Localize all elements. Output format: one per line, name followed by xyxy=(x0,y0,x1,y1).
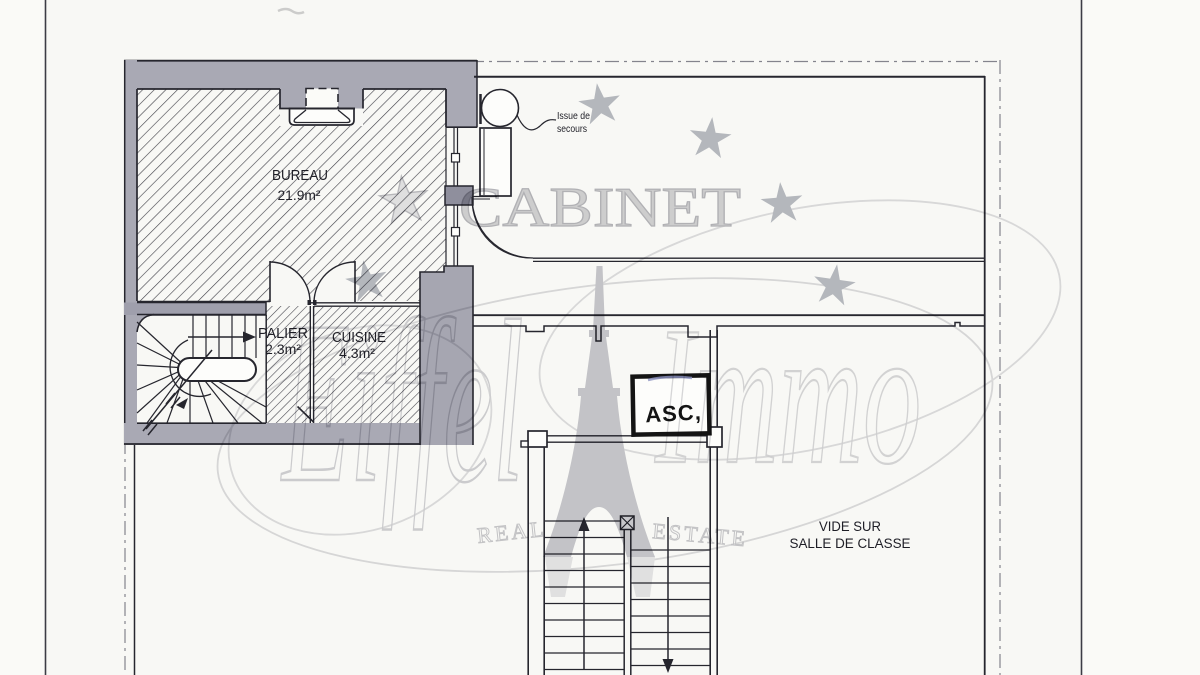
svg-text:BUREAU: BUREAU xyxy=(272,167,328,184)
svg-text:Eiffel: Eiffel xyxy=(280,273,524,531)
svg-text:VIDE SUR: VIDE SUR xyxy=(819,519,881,534)
svg-text:SALLE DE CLASSE: SALLE DE CLASSE xyxy=(790,536,911,551)
svg-text:21.9m²: 21.9m² xyxy=(278,188,322,203)
svg-text:secours: secours xyxy=(557,123,587,135)
svg-text:Issue de: Issue de xyxy=(557,110,590,122)
svg-text:CABINET: CABINET xyxy=(459,177,741,239)
svg-text:Immo: Immo xyxy=(654,287,921,506)
